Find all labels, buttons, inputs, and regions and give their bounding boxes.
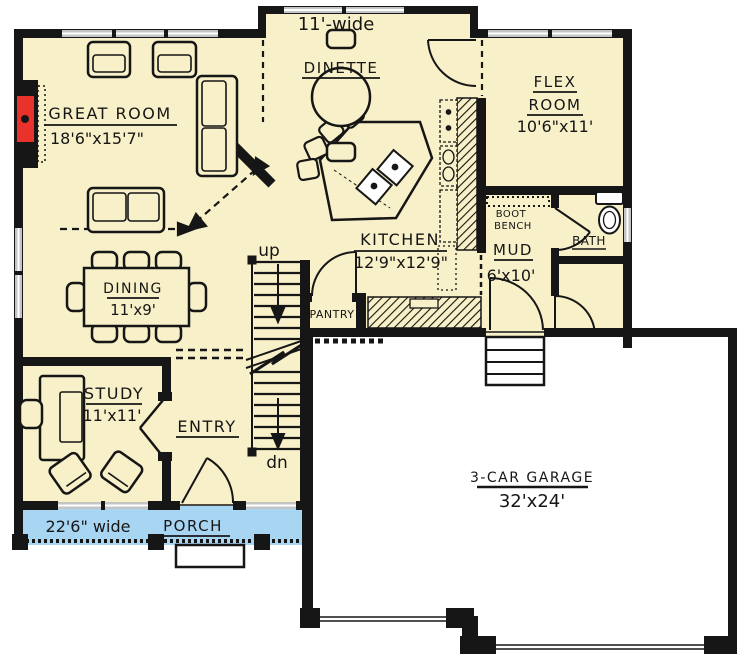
toilet-icon bbox=[596, 192, 623, 234]
pantry-label: PANTRY bbox=[309, 308, 354, 321]
mud-label: MUD bbox=[493, 241, 533, 259]
bath-label: BATH bbox=[572, 234, 606, 248]
desk-chair bbox=[20, 400, 42, 428]
porch-label: PORCH bbox=[163, 517, 223, 535]
dinette-chair bbox=[327, 143, 355, 161]
flex-label-2: ROOM bbox=[529, 96, 582, 114]
boot-bench bbox=[487, 197, 549, 206]
dinette-label: DINETTE bbox=[304, 59, 379, 77]
dinette-width-label: 11'-wide bbox=[298, 14, 375, 35]
dining-chair bbox=[67, 283, 85, 311]
entry-label: ENTRY bbox=[177, 417, 236, 436]
kitchen-label: KITCHEN bbox=[360, 230, 440, 249]
study-label: STUDY bbox=[84, 384, 144, 403]
sofa bbox=[197, 76, 237, 176]
boot-bench-label-1: BOOT bbox=[496, 209, 527, 220]
stairs-down-label: dn bbox=[266, 453, 288, 473]
sink-bowl bbox=[443, 150, 454, 164]
porch-post bbox=[254, 534, 270, 550]
wall-oven bbox=[440, 100, 457, 142]
fireplace-icon bbox=[14, 80, 45, 168]
stairs-up-label: up bbox=[258, 241, 280, 261]
great-room-dims: 18'6"x15'7" bbox=[50, 129, 144, 148]
garage-dims: 32'x24' bbox=[499, 491, 565, 512]
kitchen-dims: 12'9"x12'9" bbox=[354, 253, 448, 272]
desk-monitor bbox=[60, 392, 82, 442]
floor-plan-drawing: 11'-wide DINETTE FLEX ROOM 10'6"x11' GRE… bbox=[0, 0, 750, 666]
great-room-label: GREAT ROOM bbox=[48, 104, 171, 123]
armchair bbox=[153, 42, 196, 77]
locker-cabinet-hatch bbox=[457, 98, 477, 250]
loveseat bbox=[88, 188, 164, 232]
porch-post bbox=[12, 534, 28, 550]
dining-chair bbox=[188, 283, 206, 311]
porch-width-label: 22'6" wide bbox=[46, 517, 131, 536]
garage-steps bbox=[486, 337, 544, 385]
kitchen-sink-bottom bbox=[410, 299, 438, 308]
refrigerator bbox=[440, 190, 457, 242]
study-dims: 11'x11' bbox=[83, 406, 142, 425]
armchair bbox=[88, 42, 130, 77]
flex-dims: 10'6"x11' bbox=[517, 117, 594, 136]
sink-bowl bbox=[443, 167, 454, 181]
flex-label-1: FLEX bbox=[534, 73, 577, 91]
porch-step bbox=[176, 545, 244, 567]
dining-dims: 11'x9' bbox=[110, 301, 156, 319]
garage-label: 3-CAR GARAGE bbox=[470, 470, 594, 486]
boot-bench-label-2: BENCH bbox=[494, 221, 532, 232]
dining-label: DINING bbox=[103, 281, 163, 297]
floor-plan: 11'-wide DINETTE FLEX ROOM 10'6"x11' GRE… bbox=[0, 0, 750, 666]
mud-dims: 6'x10' bbox=[487, 266, 536, 285]
